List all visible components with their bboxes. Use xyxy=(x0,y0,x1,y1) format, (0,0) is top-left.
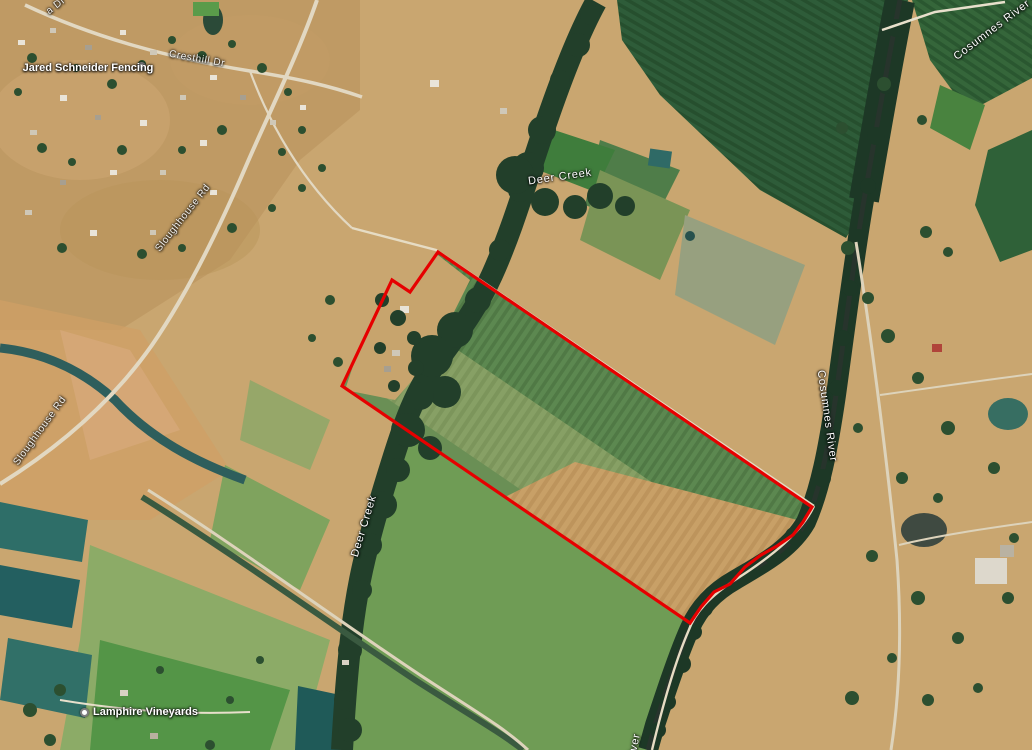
terrain xyxy=(0,0,1032,750)
satellite-map[interactable]: a Dr Jared Schneider Fencing Cresthill D… xyxy=(0,0,1032,750)
poi-label-jared-schneider-fencing[interactable]: Jared Schneider Fencing xyxy=(23,62,154,74)
poi-dot-lamphire-vineyards[interactable] xyxy=(80,708,89,717)
poi-label-lamphire-vineyards[interactable]: Lamphire Vineyards xyxy=(93,706,198,718)
